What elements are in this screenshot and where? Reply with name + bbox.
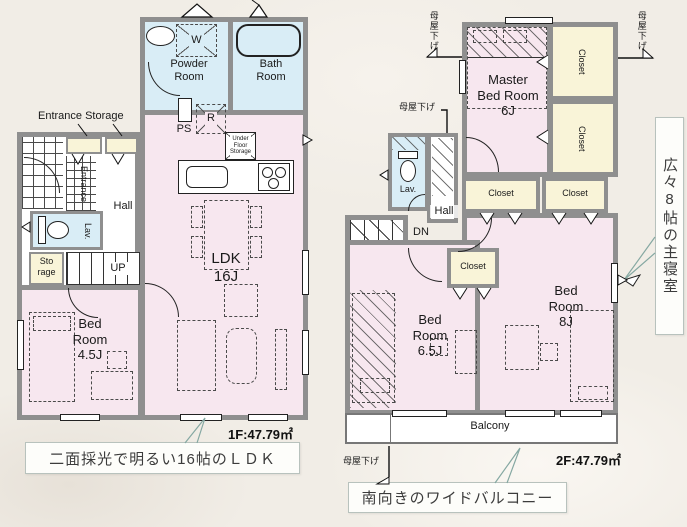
ldk-label: LDK 16J — [196, 250, 256, 286]
vent-icon — [252, 0, 259, 5]
moya-sage-label-mid: 母屋下げ — [392, 102, 442, 113]
closet-label: Closet — [451, 261, 495, 272]
closet-label: Closet — [546, 188, 604, 199]
pillow — [578, 386, 608, 400]
dn-label: DN — [408, 226, 434, 239]
leader-line — [624, 237, 655, 280]
dining-chair — [250, 206, 262, 228]
under-floor-storage-icon: Under Floor Storage — [225, 132, 256, 160]
master-bedroom-label: Master Bed Room 6J — [466, 72, 550, 119]
fridge-space-icon: R — [196, 104, 226, 134]
window — [505, 410, 555, 417]
vent-icon — [250, 5, 267, 17]
storage-label: Sto rage — [31, 256, 62, 278]
hall-label: Hall — [108, 200, 138, 213]
washer-icon: W — [176, 24, 217, 57]
floor2-area-label: 2F:47.79㎡ — [556, 450, 621, 469]
moya-sage-label-top-left: 母屋下げ — [428, 5, 439, 57]
pillow — [473, 30, 497, 43]
moya-sage-label-top-right: 母屋下げ — [636, 5, 647, 57]
desk-chair — [540, 343, 558, 361]
window — [17, 320, 24, 370]
balcony-callout: 南向きのワイドバルコニー — [348, 482, 567, 513]
under-floor-storage-label: Under Floor Storage — [230, 136, 251, 156]
vent-icon — [380, 170, 388, 180]
window — [459, 60, 466, 94]
toilet-icon — [400, 160, 416, 182]
moya-sage-line — [441, 110, 447, 133]
closet-label: Closet — [576, 112, 587, 166]
entrance-storage-label: Entrance Storage — [38, 110, 138, 123]
fridge-label: R — [205, 112, 217, 125]
leader-line — [185, 418, 205, 443]
dining-chair — [191, 206, 203, 228]
desk — [505, 325, 539, 370]
entrance-label: Entrance — [78, 158, 89, 210]
side-table — [224, 284, 258, 317]
toilet-icon — [398, 151, 418, 159]
sink-icon — [146, 26, 175, 46]
vent-icon — [182, 4, 212, 17]
window — [611, 263, 618, 303]
window — [505, 17, 553, 24]
bath-room-label: Bath Room — [238, 58, 304, 84]
toilet-icon — [47, 221, 69, 239]
ps-label: PS — [170, 123, 198, 136]
stove-icon — [258, 163, 290, 191]
window — [180, 414, 222, 421]
vent-icon — [618, 275, 627, 285]
pillow — [503, 30, 527, 43]
coffee-table — [226, 328, 257, 384]
lav-label-2f: Lav. — [392, 184, 424, 195]
moya-sage-label-bottom: 母屋下げ — [336, 456, 386, 467]
bedroom8-label: Bed Room 8J — [534, 283, 598, 330]
washer-label: W — [189, 34, 203, 47]
kitchen-sink-icon — [186, 166, 228, 188]
leader-line — [495, 448, 520, 483]
toilet-icon — [38, 216, 46, 244]
closet-label: Closet — [576, 35, 587, 89]
window — [560, 410, 602, 417]
pillow — [360, 378, 390, 393]
lowered-roof-hatch — [432, 138, 453, 196]
leader-arrowhead — [624, 275, 640, 286]
entrance-storage-closet — [66, 137, 102, 154]
lowered-roof-hatch — [392, 137, 425, 150]
master-side-note: 広々8帖の主寝室 — [655, 117, 684, 335]
pipe-space-box — [178, 98, 192, 122]
desk — [91, 371, 133, 400]
bathtub-icon — [236, 24, 301, 57]
balcony-label: Balcony — [430, 420, 550, 433]
window — [392, 410, 447, 417]
tv-board — [275, 329, 287, 390]
window — [60, 414, 100, 421]
window — [302, 250, 309, 295]
floor-plan-image: Entrance Hall Lav. Sto rage UP W Powder … — [0, 0, 687, 527]
floor1-area-label: 1F:47.79㎡ — [228, 424, 293, 443]
entrance-storage-closet — [105, 137, 138, 154]
closet-label: Closet — [466, 188, 536, 199]
sofa — [177, 320, 216, 391]
hall-label-2f: Hall — [430, 205, 458, 218]
ldk-callout: 二面採光で明るい16帖のＬＤＫ — [25, 442, 300, 474]
up-label: UP — [104, 262, 132, 275]
balcony-divider — [390, 414, 391, 443]
window — [302, 330, 309, 375]
bedroom45-label: Bed Room 4.5J — [54, 316, 126, 363]
window — [248, 414, 288, 421]
lav-label-1f: Lav. — [82, 216, 93, 246]
bedroom65-label: Bed Room 6.5J — [398, 312, 462, 359]
